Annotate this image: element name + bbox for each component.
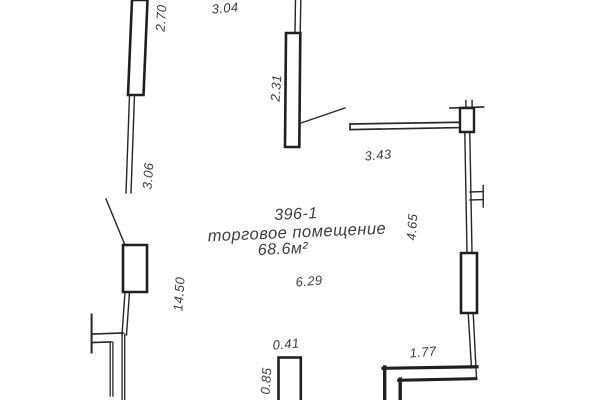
wall-left-lower [122,292,130,335]
dimension-label-niche-depth: 0.85 [258,367,275,395]
dimension-label-span-top-left: 3.04 [211,0,239,17]
pillar-right [461,253,477,313]
room-area: 68.6м² [257,240,308,260]
door-frame-left [123,245,147,292]
dimension-label-wall-top-right: 3.43 [364,146,392,163]
wall-bottom-left-inner [110,342,113,396]
wall-left [126,95,135,193]
wall-stub-right [470,186,483,207]
wall-top-right [350,122,461,129]
wall-right-lower [468,313,476,379]
niche-bottom-center [279,358,301,400]
door-swing-top [300,108,346,124]
wall-bottom-left-outer [122,334,125,400]
window-top-left [128,0,148,95]
wall-top-center-upper [295,0,301,33]
dimension-label-wall-bottom-right: 1.77 [409,343,437,360]
dimension-label-window-top-center: 2.31 [268,74,285,102]
floor-plan: 2.70 3.04 2.31 3.06 3.43 4.65 14.50 6.29… [0,0,600,400]
wall-bottom-right [383,367,477,400]
dimension-label-niche-width: 0.41 [272,335,300,352]
dimension-label-wall-left: 3.06 [139,162,156,190]
door-frame-junction [92,315,123,353]
door-swing-left [106,199,125,244]
window-top-center [285,33,300,147]
dimension-label-room-width: 6.29 [295,272,323,289]
floorplan-canvas [0,0,600,400]
dimension-label-window-top-left: 2.70 [153,4,170,32]
dimension-label-wall-right-upper: 4.65 [404,213,421,241]
dimension-label-wall-left-full: 14.50 [170,276,187,312]
